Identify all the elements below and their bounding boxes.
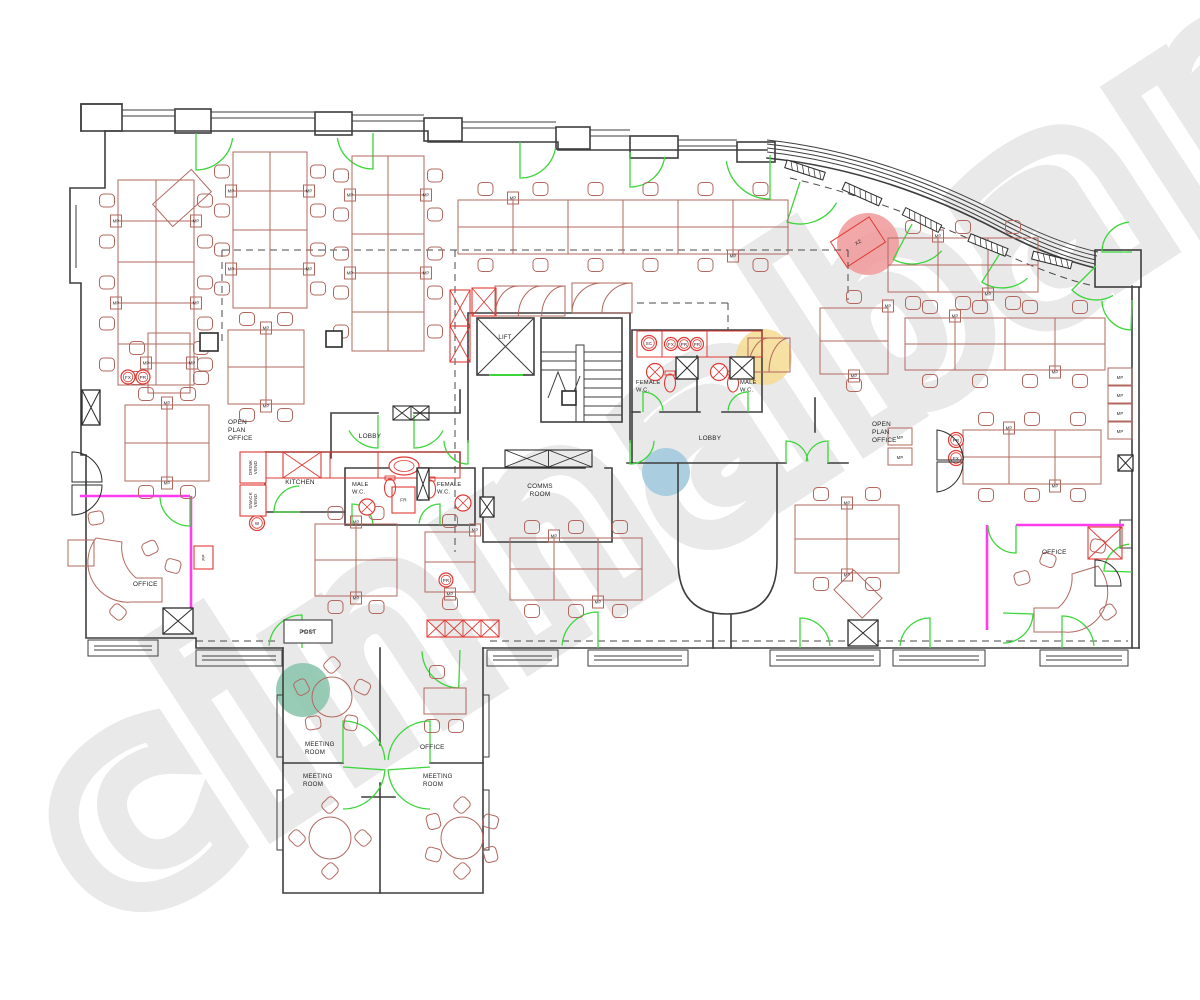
door-swing[interactable] — [349, 415, 378, 448]
door-leaf-fan — [72, 485, 102, 515]
chair — [1013, 570, 1031, 586]
door-leaf-fan — [1095, 560, 1121, 586]
curved-desk-left — [88, 538, 162, 602]
chair — [428, 208, 443, 221]
service-code: FX — [125, 375, 131, 380]
desk-bench — [233, 152, 307, 308]
desk — [352, 156, 388, 195]
chair — [814, 578, 829, 591]
service-circle-pr: PR — [691, 338, 704, 351]
rotated-desk — [153, 169, 212, 226]
chair — [278, 409, 293, 422]
chair — [428, 286, 443, 299]
duct-riser — [417, 468, 429, 500]
chair — [311, 165, 326, 178]
chair — [533, 183, 548, 196]
desk — [156, 221, 194, 262]
chair — [87, 510, 104, 525]
chair — [198, 235, 213, 248]
duct-riser — [82, 390, 100, 425]
column — [326, 331, 342, 347]
chair — [140, 539, 159, 557]
basin — [455, 495, 471, 511]
hatch-strip — [450, 290, 470, 326]
service-code: FX — [668, 342, 674, 347]
desk-tag-label: MP — [228, 267, 235, 272]
labeled-box-text: SNACKVEND — [248, 491, 258, 509]
desk — [167, 443, 209, 481]
duct-riser — [848, 620, 878, 646]
service-code: PR — [681, 342, 688, 347]
labeled-box-text: FR — [400, 498, 407, 503]
desk-tag-label: MP — [952, 314, 959, 319]
desk — [266, 330, 304, 367]
room-label-lift: LIFT — [498, 335, 511, 341]
chair — [100, 235, 115, 248]
hatch-strip — [450, 326, 470, 362]
duct-riser — [163, 608, 193, 634]
chair — [1089, 538, 1106, 553]
chair — [478, 183, 493, 196]
door-swing[interactable] — [988, 525, 1016, 553]
cupboard-door-arc — [495, 286, 518, 316]
desk-tag-label: MP — [551, 534, 558, 539]
desk-tag-label: MP — [143, 361, 150, 366]
chair — [334, 247, 349, 260]
desk-tag-label: MP — [885, 304, 892, 309]
desk-tag-label: MP — [1052, 484, 1059, 489]
wall-unit-tag: MP — [1117, 393, 1124, 398]
desk-tag-label: MP — [985, 292, 992, 297]
column — [200, 333, 218, 351]
chair — [588, 259, 603, 272]
chair — [753, 183, 768, 196]
round-table — [441, 817, 483, 859]
duct-riser — [1118, 455, 1133, 471]
desk — [270, 191, 307, 230]
room-label-office-wing: OFFICE — [420, 744, 445, 751]
desk — [233, 152, 270, 191]
desk-bench — [148, 333, 190, 393]
desk-tag-label: MP — [1052, 370, 1059, 375]
desk — [270, 152, 307, 191]
chair — [311, 204, 326, 217]
desk — [167, 405, 209, 443]
chair — [979, 489, 994, 502]
desk — [148, 363, 190, 393]
duct-riser — [730, 357, 754, 379]
room-label-lobby-right: LOBBY — [699, 435, 722, 442]
chair — [1025, 489, 1040, 502]
chair — [334, 208, 349, 221]
desk — [148, 333, 190, 363]
chair — [424, 846, 442, 862]
chair — [698, 183, 713, 196]
labeled-box-1: SNACKVEND — [240, 485, 266, 516]
duct-riser — [480, 497, 494, 517]
service-code: SC — [646, 341, 653, 346]
door-swing[interactable] — [160, 496, 190, 526]
desk-tag-label: MP — [164, 401, 171, 406]
chair — [1071, 413, 1086, 426]
desk-tag-label: MP — [263, 326, 270, 331]
desk — [388, 195, 424, 234]
desk — [118, 262, 156, 303]
chair — [139, 388, 154, 401]
desk — [125, 405, 167, 443]
side-table — [68, 540, 94, 566]
hatch-cross — [472, 288, 496, 316]
door-swing[interactable] — [900, 618, 930, 648]
desk — [963, 457, 1009, 484]
cupboard-door-arc — [518, 286, 541, 316]
hatch-strip — [283, 452, 321, 478]
desk — [266, 367, 304, 404]
desk — [458, 200, 513, 227]
desk-tag-label: MP — [113, 301, 120, 306]
chair — [198, 194, 213, 207]
labeled-box-3: FP — [194, 546, 213, 569]
chair — [100, 317, 115, 330]
desk — [1009, 430, 1055, 457]
desk — [156, 262, 194, 303]
chair — [452, 795, 472, 815]
chair — [198, 317, 213, 330]
service-code: PR — [694, 342, 701, 347]
door-swing[interactable] — [337, 133, 373, 169]
hatch-strip — [472, 288, 496, 316]
floor-plan-stage: cinnabar — [0, 0, 1200, 1000]
desk — [388, 312, 424, 351]
room-label-comms-room: COMMSROOM — [527, 483, 553, 498]
desk — [388, 273, 424, 312]
chair — [100, 194, 115, 207]
desk — [847, 539, 899, 573]
service-circle-fx: FX — [665, 338, 678, 351]
desk — [233, 269, 270, 308]
basin — [647, 364, 664, 381]
desk-tag-label: MP — [263, 404, 270, 409]
chair — [100, 276, 115, 289]
desk — [118, 180, 156, 221]
desk-tag-label: MP — [113, 219, 120, 224]
service-circle-fx: FX — [949, 451, 964, 466]
desk — [352, 234, 388, 273]
desk — [118, 303, 156, 344]
desk-tag-label: MP — [1006, 426, 1013, 431]
desk-tag-label: MP — [193, 219, 200, 224]
wall-unit-tag: MP — [1117, 411, 1124, 416]
desk-tag-label: MP — [423, 193, 430, 198]
hatch-cross — [450, 290, 470, 326]
door-swing[interactable] — [1003, 613, 1033, 643]
desk-tag-label: MP — [306, 189, 313, 194]
room-label-lobby-left: LOBBY — [359, 433, 382, 440]
desk-tag-label: MP — [844, 501, 851, 506]
desk-tag-label: MP — [353, 596, 360, 601]
wall-unit-tag: MP — [1117, 375, 1124, 380]
desk — [156, 303, 194, 344]
service-circle-pr: PR — [136, 370, 150, 384]
door-leaf-fan — [72, 452, 102, 482]
desk-tag-label: MP — [935, 234, 942, 239]
basin — [711, 364, 728, 381]
column — [562, 391, 576, 405]
cupboard-door-arc — [542, 286, 565, 316]
desk-tag-label: MP — [447, 592, 454, 597]
desk — [623, 200, 678, 227]
desk-tag-label: MP — [193, 301, 200, 306]
chair — [215, 165, 230, 178]
chair — [425, 813, 441, 831]
chair — [428, 325, 443, 338]
chair — [452, 861, 472, 881]
door-swing[interactable] — [196, 133, 233, 170]
desk — [513, 200, 568, 227]
desk-tag-label: MP — [595, 600, 602, 605]
desk — [1055, 457, 1101, 484]
duct-riser — [676, 357, 698, 379]
curved-desk-right — [1034, 566, 1108, 632]
service-circle-pr: PR — [678, 338, 691, 351]
desk — [233, 191, 270, 230]
desk — [270, 269, 307, 308]
hatch-cross — [283, 452, 321, 478]
chair — [100, 358, 115, 371]
desk — [118, 221, 156, 262]
hatch-cross — [450, 326, 470, 362]
room-label-office-bottom-left: OFFICE — [133, 581, 158, 588]
chair — [181, 388, 196, 401]
basin — [359, 499, 375, 515]
labeled-box-text: FP — [201, 554, 206, 560]
desk — [568, 200, 623, 227]
sink — [389, 457, 419, 475]
desk-tag-label: MP — [510, 196, 517, 201]
chair — [278, 313, 293, 326]
chair — [198, 276, 213, 289]
room-label-office-bottom-right: OFFICE — [1042, 549, 1067, 556]
desk-tag-label: MP — [306, 267, 313, 272]
desk — [352, 273, 388, 312]
desk — [228, 367, 266, 404]
door-swing[interactable] — [800, 618, 830, 648]
service-circle-fx: FX — [121, 370, 135, 384]
door-swing[interactable] — [520, 142, 556, 178]
chair — [334, 169, 349, 182]
desk — [125, 443, 167, 481]
desk-tag-label: MP — [164, 481, 171, 486]
chair — [198, 358, 213, 371]
desk-tag-label: MP — [353, 520, 360, 525]
desk — [228, 330, 266, 367]
desk-tag-label: MP — [730, 254, 737, 259]
chair — [1098, 602, 1118, 621]
desk — [388, 234, 424, 273]
chair — [482, 846, 498, 864]
desk-tag-label: MP — [423, 271, 430, 276]
watermark-teal-dot — [276, 663, 330, 717]
hatch-strip — [1088, 527, 1122, 559]
chair — [194, 372, 209, 385]
chair — [240, 313, 255, 326]
wall-unit-tag: MP — [897, 455, 904, 460]
service-circle-pr: PR — [439, 573, 453, 587]
cupboard — [495, 286, 565, 316]
desk-tag-label: MP — [347, 271, 354, 276]
desk-tag-label: MP — [851, 374, 858, 379]
desk-tag-label: MP — [347, 193, 354, 198]
chair — [164, 558, 182, 574]
hatch-cross — [393, 406, 411, 420]
hatch-cross — [1088, 527, 1122, 559]
desk — [352, 195, 388, 234]
room-label-post: POST — [299, 630, 316, 636]
room-label-kitchen: KITCHEN — [285, 479, 315, 486]
desk — [1009, 457, 1055, 484]
service-circle-sc: SC — [642, 336, 657, 351]
labeled-box-text: DRINKVEND — [248, 459, 258, 475]
service-circle-w: W — [250, 516, 265, 531]
chair — [482, 813, 500, 829]
desk-tag-label: MP — [189, 361, 196, 366]
floor-plan-drawing: cinnabar — [0, 0, 1200, 1000]
wall-unit-tag: MP — [897, 435, 904, 440]
desk — [1055, 430, 1101, 457]
chair — [643, 183, 658, 196]
desk-bench — [352, 156, 424, 351]
chair — [428, 247, 443, 260]
chair — [588, 183, 603, 196]
service-code: W — [255, 521, 260, 526]
chair — [533, 259, 548, 272]
desk-tag-label: MP — [472, 528, 479, 533]
chair — [215, 204, 230, 217]
desk-bench — [125, 405, 209, 481]
desk — [352, 312, 388, 351]
chair — [428, 169, 443, 182]
desk-bench — [118, 180, 194, 385]
desk-bench — [228, 330, 304, 404]
room-label-open-plan-office-left: OPENPLANOFFICE — [228, 419, 253, 442]
service-code: PR — [140, 375, 147, 380]
chair — [1071, 489, 1086, 502]
desk — [388, 156, 424, 195]
wall-unit-tag: MP — [1117, 429, 1124, 434]
labeled-box-0: DRINKVEND — [240, 452, 266, 483]
chair — [130, 342, 145, 355]
chair — [311, 282, 326, 295]
desk-tag-label: MP — [228, 189, 235, 194]
chair — [478, 259, 493, 272]
chair — [334, 286, 349, 299]
service-code: PR — [443, 578, 450, 583]
